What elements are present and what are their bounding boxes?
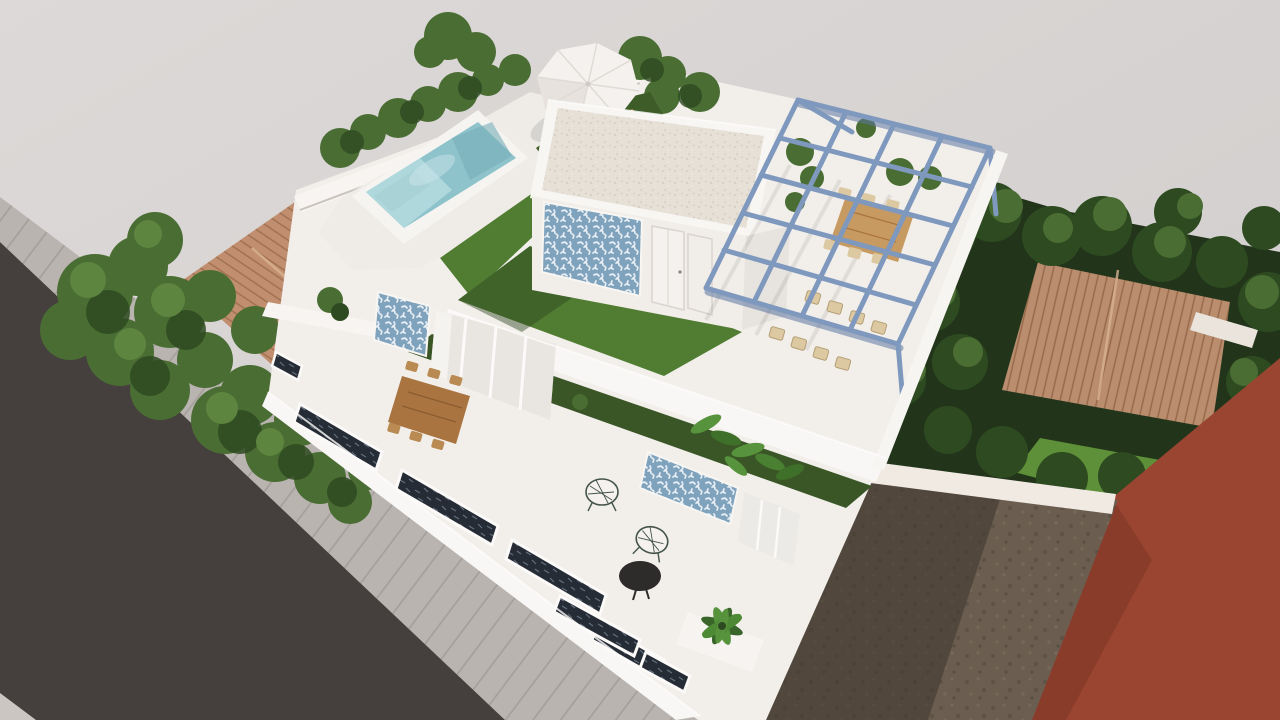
render-canvas (0, 0, 1280, 720)
architectural-render (0, 0, 1280, 720)
cabin-doors (652, 226, 712, 315)
